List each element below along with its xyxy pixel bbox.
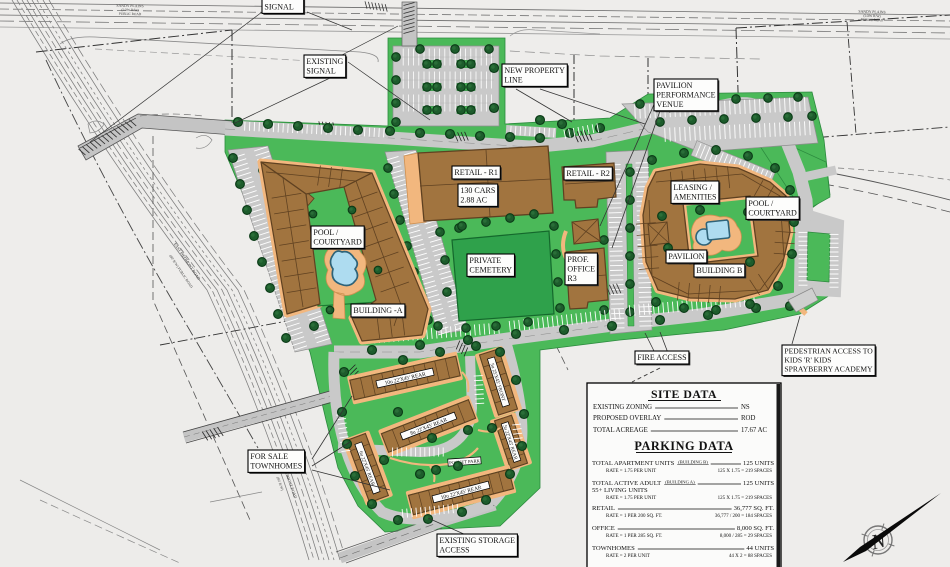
svg-text:TOTAL ACTIVE ADULT: TOTAL ACTIVE ADULT xyxy=(592,480,661,487)
svg-text:SIGNAL: SIGNAL xyxy=(264,2,293,11)
svg-text:RATE = 2 PER UNIT: RATE = 2 PER UNIT xyxy=(606,554,650,559)
svg-text:CEMETERY: CEMETERY xyxy=(469,265,512,274)
svg-text:SIGNAL: SIGNAL xyxy=(306,66,335,75)
svg-text:(BUILDING B): (BUILDING B) xyxy=(678,460,708,465)
svg-text:EXISTING: EXISTING xyxy=(306,57,343,66)
svg-text:RATE = 1 PER 285 SQ. FT.: RATE = 1 PER 285 SQ. FT. xyxy=(606,534,662,539)
svg-text:PUBLIC ROAD: PUBLIC ROAD xyxy=(119,12,142,16)
svg-text:NS: NS xyxy=(741,404,750,411)
svg-text:PERFORMANCE: PERFORMANCE xyxy=(656,90,715,99)
svg-text:8,000 / 285 = 29 SPACES: 8,000 / 285 = 29 SPACES xyxy=(720,534,772,539)
svg-text:FIRE ACCESS: FIRE ACCESS xyxy=(637,353,686,362)
svg-text:2.88 AC: 2.88 AC xyxy=(460,195,487,204)
svg-text:POOL /: POOL / xyxy=(313,228,339,237)
svg-text:125 UNITS: 125 UNITS xyxy=(743,480,774,487)
svg-text:55+ LIVING UNITS: 55+ LIVING UNITS xyxy=(592,487,648,494)
svg-text:RATE = 1.75 PER UNIT: RATE = 1.75 PER UNIT xyxy=(606,469,656,474)
svg-text:POOL /: POOL / xyxy=(748,199,774,208)
svg-text:R3: R3 xyxy=(567,274,576,283)
svg-text:LEASING /: LEASING / xyxy=(673,183,712,192)
svg-text:130 CARS: 130 CARS xyxy=(460,186,495,195)
svg-text:SITE DATA: SITE DATA xyxy=(651,387,717,401)
svg-text:VENUE: VENUE xyxy=(656,100,683,109)
svg-text:TOTAL APARTMENT UNITS: TOTAL APARTMENT UNITS xyxy=(592,460,675,467)
svg-text:KIDS 'R' KIDS: KIDS 'R' KIDS xyxy=(784,356,831,365)
svg-text:RATE = 1.75 PER UNIT: RATE = 1.75 PER UNIT xyxy=(606,496,656,501)
svg-text:BUILDING B: BUILDING B xyxy=(696,266,742,275)
svg-text:SPRAYBERRY ACADEMY: SPRAYBERRY ACADEMY xyxy=(784,365,873,374)
svg-text:36,777 SQ. FT.: 36,777 SQ. FT. xyxy=(734,505,775,512)
svg-text:RETAIL: RETAIL xyxy=(592,505,615,512)
svg-text:OFFICE: OFFICE xyxy=(567,264,595,273)
svg-text:BUILDING -A: BUILDING -A xyxy=(353,306,402,315)
svg-text:PEDESTRIAN ACCESS TO: PEDESTRIAN ACCESS TO xyxy=(784,347,873,356)
svg-text:PARKING DATA: PARKING DATA xyxy=(634,439,733,453)
svg-text:(BUILDING A): (BUILDING A) xyxy=(665,480,695,485)
svg-text:PRIVATE: PRIVATE xyxy=(469,256,501,265)
svg-text:PAVILION: PAVILION xyxy=(656,81,692,90)
svg-text:AMENITIES: AMENITIES xyxy=(673,192,716,201)
svg-text:EXISTING STORAGE: EXISTING STORAGE xyxy=(439,536,515,545)
svg-text:36,777 / 200 = 184 SPACES: 36,777 / 200 = 184 SPACES xyxy=(715,514,772,519)
svg-text:125 X 1.75 = 219 SPACES: 125 X 1.75 = 219 SPACES xyxy=(718,469,773,474)
svg-text:OFFICE: OFFICE xyxy=(592,525,615,532)
svg-text:ACCESS: ACCESS xyxy=(439,545,469,554)
svg-text:FOR SALE: FOR SALE xyxy=(250,452,288,461)
svg-text:44 X 2 = 88 SPACES: 44 X 2 = 88 SPACES xyxy=(729,554,772,559)
svg-text:RETAIL - R2: RETAIL - R2 xyxy=(566,169,610,178)
svg-text:125 X 1.75 = 219 SPACES: 125 X 1.75 = 219 SPACES xyxy=(718,496,773,501)
svg-text:RATE = 1 PER 200 SQ. FT.: RATE = 1 PER 200 SQ. FT. xyxy=(606,514,662,519)
svg-text:ROD: ROD xyxy=(741,415,755,422)
svg-text:RETAIL - R1: RETAIL - R1 xyxy=(454,168,498,177)
svg-text:TOWNHOMES: TOWNHOMES xyxy=(250,461,302,470)
svg-text:44 UNITS: 44 UNITS xyxy=(746,545,774,552)
svg-text:NEW PROPERTY: NEW PROPERTY xyxy=(504,66,565,75)
svg-text:TOTAL ACREAGE: TOTAL ACREAGE xyxy=(593,427,648,434)
svg-text:PAVILION: PAVILION xyxy=(668,252,704,261)
svg-text:COURTYARD: COURTYARD xyxy=(748,208,797,217)
svg-text:EXISTING ZONING: EXISTING ZONING xyxy=(593,404,652,411)
svg-text:LINE: LINE xyxy=(504,75,522,84)
svg-text:8,000 SQ. FT.: 8,000 SQ. FT. xyxy=(737,525,774,532)
svg-text:PROF.: PROF. xyxy=(567,255,588,264)
svg-text:17.67 AC: 17.67 AC xyxy=(741,427,768,434)
svg-text:125 UNITS: 125 UNITS xyxy=(743,460,774,467)
svg-text:PROPOSED OVERLAY: PROPOSED OVERLAY xyxy=(593,415,661,422)
svg-text:COURTYARD: COURTYARD xyxy=(313,237,362,246)
svg-text:TOWNHOMES: TOWNHOMES xyxy=(592,545,635,552)
